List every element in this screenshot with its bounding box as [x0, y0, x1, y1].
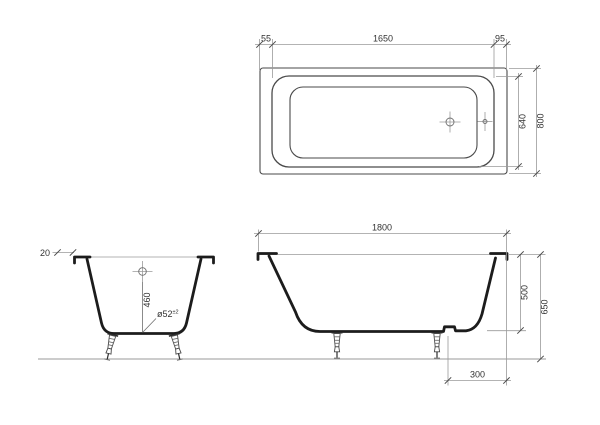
dim-basin-depth-label: 500 [520, 285, 530, 300]
end-section-view: 20 460 ø52±2 [40, 248, 214, 361]
dim-drain-offset-label: 300 [470, 370, 485, 380]
right-rim-profile [491, 254, 508, 260]
side-section-view: 1800 500 650 300 [254, 223, 550, 386]
dim-rim-lip-label: 20 [40, 248, 50, 258]
dim-drain-height: 460 [142, 292, 152, 307]
dim-drain-offset: 300 [444, 336, 511, 386]
tub-shell-profile [269, 256, 496, 332]
tub-leg [102, 334, 118, 361]
overflow-mark-plan [478, 112, 493, 131]
left-rim-profile [258, 254, 277, 260]
dim-overall-length-label: 1800 [372, 223, 392, 233]
dim-right-offset: 95 [495, 34, 505, 44]
dim-overall-height-label: 650 [540, 299, 550, 314]
dim-basin-length: 1650 [373, 34, 393, 44]
drain-diameter-label: ø52±2 [157, 309, 179, 319]
plan-view: 55 1650 95 640 800 [255, 34, 546, 178]
drain-mark-plan [440, 112, 461, 133]
tub-leg [169, 334, 185, 361]
dim-basin-width-label: 640 [518, 114, 528, 129]
tub-basin-bottom-edge [290, 87, 477, 158]
drain-diameter-callout: ø52±2 [143, 309, 179, 332]
leader-line [143, 319, 156, 333]
tub-leg [332, 333, 343, 358]
dim-overall-width-label: 800 [536, 113, 546, 128]
dim-drain-height-label: 460 [142, 292, 152, 307]
dim-rim-lip: 20 [40, 248, 76, 258]
dim-chain-top: 55 1650 95 [255, 34, 511, 79]
tub-leg [432, 333, 443, 358]
dim-left-offset: 55 [261, 34, 271, 44]
tub-rim-edge [272, 76, 494, 167]
technical-drawing-page: 55 1650 95 640 800 [0, 0, 600, 425]
bathtub-dimensional-drawing: 55 1650 95 640 800 [0, 0, 600, 425]
dim-overall-height: 650 [537, 251, 549, 362]
